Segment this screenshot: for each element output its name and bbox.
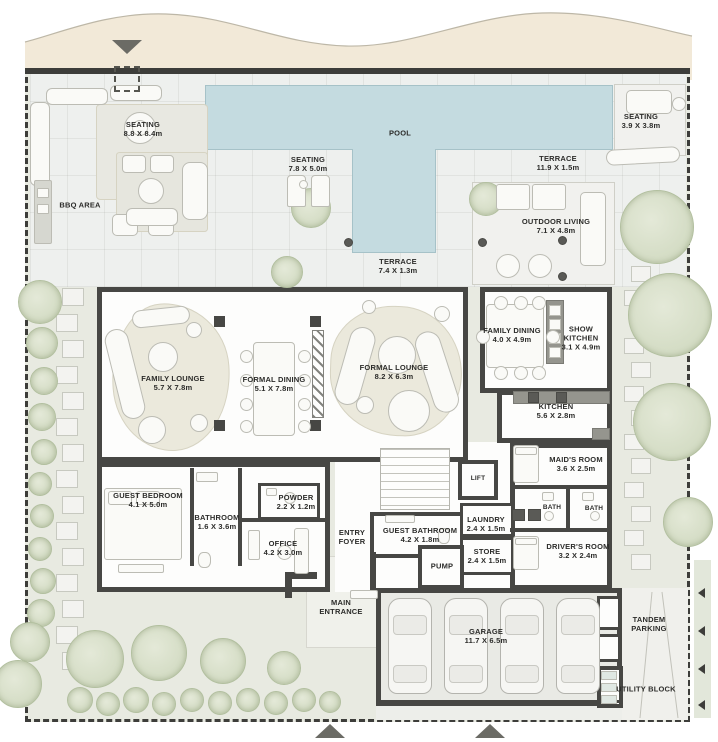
room-name: OFFICE bbox=[269, 539, 298, 548]
room-dimensions: 2.2 X 1.2m bbox=[277, 502, 316, 511]
room-label: SHOW KITCHEN3.1 X 4.9m bbox=[558, 325, 604, 352]
tree-icon bbox=[28, 403, 56, 431]
wall-segment bbox=[190, 468, 194, 566]
wall-segment bbox=[310, 316, 321, 327]
utility-closet bbox=[597, 596, 621, 630]
kitchen-counter bbox=[592, 428, 610, 440]
room-dimensions: 3.1 X 4.9m bbox=[558, 343, 604, 352]
wall-segment bbox=[214, 420, 225, 431]
furniture bbox=[542, 492, 554, 501]
room-name: SHOW KITCHEN bbox=[564, 325, 599, 343]
room-name: MAID'S ROOM bbox=[549, 455, 603, 464]
room-label: SEATING3.9 X 3.8m bbox=[622, 112, 661, 130]
dining-chair bbox=[494, 366, 508, 380]
hatched-wall bbox=[312, 330, 324, 418]
room-name: FAMILY DINING bbox=[483, 326, 541, 335]
room-label: ENTRY FOYER bbox=[331, 528, 373, 546]
entrance-gate bbox=[114, 66, 140, 92]
dining-chair bbox=[514, 296, 528, 310]
furniture bbox=[150, 155, 174, 173]
tree-icon bbox=[663, 497, 713, 547]
wall-segment bbox=[510, 528, 608, 532]
pool-seam bbox=[354, 147, 434, 152]
furniture bbox=[532, 184, 566, 210]
stepping-stone bbox=[62, 288, 84, 306]
tree-icon bbox=[271, 256, 303, 288]
room-dimensions: 5.1 X 7.8m bbox=[243, 384, 306, 393]
room-label: SEATING7.8 X 5.0m bbox=[289, 155, 328, 173]
dining-chair bbox=[240, 350, 253, 363]
tree-icon bbox=[30, 367, 58, 395]
pool bbox=[205, 85, 613, 150]
furniture bbox=[198, 552, 211, 568]
round-furniture bbox=[544, 511, 554, 521]
room-name: GARAGE bbox=[469, 627, 503, 636]
furniture bbox=[626, 90, 672, 114]
tree-icon bbox=[292, 688, 316, 712]
tree-icon bbox=[31, 439, 57, 465]
dining-chair bbox=[298, 398, 311, 411]
furniture bbox=[515, 447, 537, 455]
room-label: TERRACE7.4 X 1.3m bbox=[379, 257, 418, 275]
room-name: GUEST BATHROOM bbox=[383, 526, 457, 535]
stepping-stone bbox=[62, 600, 84, 618]
furniture bbox=[46, 88, 108, 105]
car-windshield bbox=[393, 615, 427, 635]
round-furniture bbox=[496, 254, 520, 278]
room-name: KITCHEN bbox=[539, 402, 574, 411]
car-icon bbox=[388, 598, 432, 694]
tree-icon bbox=[628, 273, 712, 357]
tree-icon bbox=[200, 638, 246, 684]
room-dimensions: 2.4 X 1.5m bbox=[467, 524, 506, 533]
boundary-tick-icon bbox=[698, 588, 705, 598]
stepping-stone bbox=[56, 366, 78, 384]
wall-segment bbox=[510, 485, 608, 489]
room-dimensions: 8.2 X 6.3m bbox=[360, 372, 429, 381]
stepping-stone bbox=[631, 458, 651, 474]
room-dimensions: 11.7 X 6.5m bbox=[465, 636, 508, 645]
room-name: PUMP bbox=[431, 562, 453, 571]
room-label: OUTDOOR LIVING7.1 X 4.8m bbox=[522, 217, 590, 235]
dining-chair bbox=[532, 296, 546, 310]
room-name: FORMAL LOUNGE bbox=[360, 363, 429, 372]
utility-cell bbox=[601, 695, 617, 704]
appliance bbox=[512, 509, 525, 521]
appliance bbox=[528, 509, 541, 521]
room-name: FORMAL DINING bbox=[243, 375, 306, 384]
room-dimensions: 3.9 X 3.8m bbox=[622, 121, 661, 130]
tree-icon bbox=[28, 472, 52, 496]
boundary-tick-icon bbox=[698, 700, 705, 710]
round-furniture bbox=[672, 97, 686, 111]
car-rear-window bbox=[505, 665, 539, 683]
dining-chair bbox=[298, 350, 311, 363]
room-label: UTILITY BLOCK bbox=[616, 685, 676, 694]
room-label: PUMP bbox=[431, 562, 453, 571]
boundary-tick-icon bbox=[698, 626, 705, 636]
room-label: BATH bbox=[543, 504, 561, 512]
room-label: KITCHEN5.6 X 2.8m bbox=[537, 402, 576, 420]
wall-segment bbox=[380, 700, 620, 703]
room-label: BBQ AREA bbox=[59, 201, 100, 210]
tree-icon bbox=[96, 692, 120, 716]
room-name: BATH bbox=[585, 505, 603, 512]
tree-icon bbox=[66, 630, 124, 688]
room-label: MAID'S ROOM3.6 X 2.5m bbox=[549, 455, 603, 473]
wall-segment bbox=[310, 420, 321, 431]
round-furniture bbox=[190, 414, 208, 432]
tree-icon bbox=[633, 383, 711, 461]
room-label: POWDER2.2 X 1.2m bbox=[277, 493, 316, 511]
room-label: FAMILY LOUNGE5.7 X 7.8m bbox=[141, 374, 204, 392]
tree-icon bbox=[236, 688, 260, 712]
tree-icon bbox=[30, 504, 54, 528]
car-icon bbox=[556, 598, 600, 694]
tree-icon bbox=[18, 280, 62, 324]
stepping-stone bbox=[56, 418, 78, 436]
tree-icon bbox=[208, 691, 232, 715]
room-label: FORMAL DINING5.1 X 7.8m bbox=[243, 375, 306, 393]
room-dimensions: 11.9 X 1.5m bbox=[537, 163, 580, 172]
round-furniture bbox=[356, 396, 374, 414]
round-furniture bbox=[388, 390, 430, 432]
room-label: GUEST BATHROOM4.2 X 1.8m bbox=[383, 526, 457, 544]
room-dimensions: 5.7 X 7.8m bbox=[141, 383, 204, 392]
boundary-tick-icon bbox=[698, 664, 705, 674]
room-dimensions: 8.8 X 8.4m bbox=[124, 129, 163, 138]
furniture bbox=[118, 564, 164, 573]
room-dimensions: 4.0 X 4.9m bbox=[481, 335, 543, 344]
room-label: DRIVER'S ROOM3.2 X 2.4m bbox=[546, 542, 609, 560]
tree-icon bbox=[264, 691, 288, 715]
room-label: FORMAL LOUNGE8.2 X 6.3m bbox=[360, 363, 429, 381]
planter-dot bbox=[344, 238, 353, 247]
room-label: MAIN ENTRANCE bbox=[314, 598, 368, 616]
wall-segment bbox=[370, 552, 376, 592]
dining-chair bbox=[532, 366, 546, 380]
room-dimensions: 3.6 X 2.5m bbox=[549, 464, 603, 473]
car-rear-window bbox=[561, 665, 595, 683]
room-name: BATHROOM bbox=[194, 513, 239, 522]
car-windshield bbox=[505, 615, 539, 635]
furniture bbox=[182, 162, 208, 220]
room-dimensions: 3.2 X 2.4m bbox=[546, 551, 609, 560]
room-label: GARAGE11.7 X 6.5m bbox=[465, 627, 508, 645]
room-label: FAMILY DINING4.0 X 4.9m bbox=[481, 326, 543, 344]
room-name: UTILITY BLOCK bbox=[616, 685, 676, 694]
planter-dot bbox=[558, 272, 567, 281]
furniture bbox=[515, 538, 537, 545]
round-furniture bbox=[148, 342, 178, 372]
stepping-stone bbox=[631, 554, 651, 570]
stepping-stone bbox=[62, 496, 84, 514]
planter-dot bbox=[478, 238, 487, 247]
tree-icon bbox=[26, 327, 58, 359]
tree-icon bbox=[180, 688, 204, 712]
room-name: TERRACE bbox=[379, 257, 417, 266]
room-label: BATHROOM1.6 X 3.6m bbox=[194, 513, 239, 531]
tandem-parking-area bbox=[622, 588, 688, 720]
room-name: BATH bbox=[543, 504, 561, 511]
wall-segment bbox=[240, 518, 328, 522]
furniture bbox=[385, 515, 415, 523]
room-name: LAUNDRY bbox=[467, 515, 505, 524]
round-furniture bbox=[528, 254, 552, 278]
room-dimensions: 2.4 X 1.5m bbox=[468, 556, 507, 565]
furniture bbox=[122, 155, 146, 173]
hedge-strip-right bbox=[694, 560, 711, 718]
room-dimensions: 4.2 X 1.8m bbox=[383, 535, 457, 544]
dining-chair bbox=[240, 420, 253, 433]
tree-icon bbox=[28, 537, 52, 561]
room-name: BBQ AREA bbox=[59, 201, 100, 210]
room-dimensions: 5.6 X 2.8m bbox=[537, 411, 576, 420]
room-label: SEATING8.8 X 8.4m bbox=[124, 120, 163, 138]
room-label: TERRACE11.9 X 1.5m bbox=[537, 154, 580, 172]
stepping-stone bbox=[62, 548, 84, 566]
tree-icon bbox=[123, 687, 149, 713]
stepping-stone bbox=[631, 506, 651, 522]
dining-chair bbox=[494, 296, 508, 310]
car-icon bbox=[444, 598, 488, 694]
furniture bbox=[37, 188, 49, 198]
room-name: STORE bbox=[474, 547, 501, 556]
furniture bbox=[266, 488, 277, 496]
furniture bbox=[196, 472, 218, 482]
round-furniture bbox=[362, 300, 376, 314]
pool-extension bbox=[352, 149, 436, 253]
stepping-stone bbox=[56, 574, 78, 592]
room-name: TERRACE bbox=[539, 154, 577, 163]
room-name: DRIVER'S ROOM bbox=[546, 542, 609, 551]
room-name: POWDER bbox=[279, 493, 314, 502]
room-label: POOL bbox=[389, 129, 411, 138]
stepping-stone bbox=[56, 522, 78, 540]
utility-cell bbox=[601, 683, 617, 692]
room-label: GUEST BEDROOM4.1 X 5.0m bbox=[113, 491, 183, 509]
room-dimensions: 4.2 X 3.0m bbox=[264, 548, 303, 557]
wall-segment bbox=[285, 572, 292, 598]
furniture bbox=[30, 102, 50, 186]
room-label: STORE2.4 X 1.5m bbox=[468, 547, 507, 565]
dining-chair bbox=[514, 366, 528, 380]
room-dimensions: 7.4 X 1.3m bbox=[379, 266, 418, 275]
cabinet bbox=[549, 305, 561, 316]
furniture bbox=[496, 184, 530, 210]
tree-icon bbox=[131, 625, 187, 681]
dining-chair bbox=[240, 398, 253, 411]
furniture bbox=[582, 492, 594, 501]
stepping-stone bbox=[624, 530, 644, 546]
room-name: OUTDOOR LIVING bbox=[522, 217, 590, 226]
tree-icon bbox=[152, 692, 176, 716]
room-name: GUEST BEDROOM bbox=[113, 491, 183, 500]
room-name: FAMILY LOUNGE bbox=[141, 374, 204, 383]
room-name: POOL bbox=[389, 129, 411, 138]
room-label: LAUNDRY2.4 X 1.5m bbox=[467, 515, 506, 533]
round-furniture bbox=[299, 180, 308, 189]
room-dimensions: 4.1 X 5.0m bbox=[113, 500, 183, 509]
room-dimensions: 7.8 X 5.0m bbox=[289, 164, 328, 173]
wall-segment bbox=[566, 487, 570, 532]
car-rear-window bbox=[393, 665, 427, 683]
room-label: TANDEM PARKING bbox=[624, 615, 674, 633]
stepping-stone bbox=[62, 444, 84, 462]
car-rear-window bbox=[449, 665, 483, 683]
floor-plan-canvas: SEATING8.8 X 8.4mBBQ AREAPOOLSEATING7.8 … bbox=[0, 0, 718, 742]
tree-icon bbox=[620, 190, 694, 264]
round-furniture bbox=[138, 178, 164, 204]
utility-cell bbox=[601, 671, 617, 680]
room-name: TANDEM PARKING bbox=[631, 615, 666, 633]
furniture bbox=[37, 204, 49, 214]
staircase bbox=[380, 448, 450, 510]
room-name: SEATING bbox=[291, 155, 325, 164]
furniture bbox=[126, 208, 178, 226]
room-label: OFFICE4.2 X 3.0m bbox=[264, 539, 303, 557]
stepping-stone bbox=[62, 340, 84, 358]
room-name: ENTRY FOYER bbox=[339, 528, 366, 546]
tree-icon bbox=[319, 691, 341, 713]
driveway-arrow-icon bbox=[475, 724, 505, 738]
tree-icon bbox=[267, 651, 301, 685]
utility-closet bbox=[597, 634, 621, 662]
room-name: LIFT bbox=[471, 475, 486, 482]
dining-chair bbox=[298, 420, 311, 433]
stepping-stone bbox=[624, 482, 644, 498]
entrance-arrow-icon bbox=[112, 40, 142, 54]
stepping-stone bbox=[56, 470, 78, 488]
car-windshield bbox=[561, 615, 595, 635]
driveway-arrow-icon bbox=[315, 724, 345, 738]
round-furniture bbox=[434, 306, 450, 322]
tree-icon bbox=[67, 687, 93, 713]
room-label: LIFT bbox=[471, 475, 486, 483]
stepping-stone bbox=[62, 392, 84, 410]
planter-dot bbox=[558, 236, 567, 245]
room-label: BATH bbox=[585, 505, 603, 513]
tree-icon bbox=[30, 568, 56, 594]
car-icon bbox=[500, 598, 544, 694]
room-name: SEATING bbox=[624, 112, 658, 121]
stepping-stone bbox=[631, 362, 651, 378]
stepping-stone bbox=[56, 314, 78, 332]
tree-icon bbox=[10, 622, 50, 662]
round-furniture bbox=[186, 322, 202, 338]
room-name: MAIN ENTRANCE bbox=[319, 598, 362, 616]
round-furniture bbox=[138, 416, 166, 444]
wall-segment bbox=[214, 316, 225, 327]
furniture bbox=[248, 530, 260, 560]
furniture bbox=[311, 175, 330, 207]
room-dimensions: 7.1 X 4.8m bbox=[522, 226, 590, 235]
room-name: SEATING bbox=[126, 120, 160, 129]
room-dimensions: 1.6 X 3.6m bbox=[194, 522, 239, 531]
